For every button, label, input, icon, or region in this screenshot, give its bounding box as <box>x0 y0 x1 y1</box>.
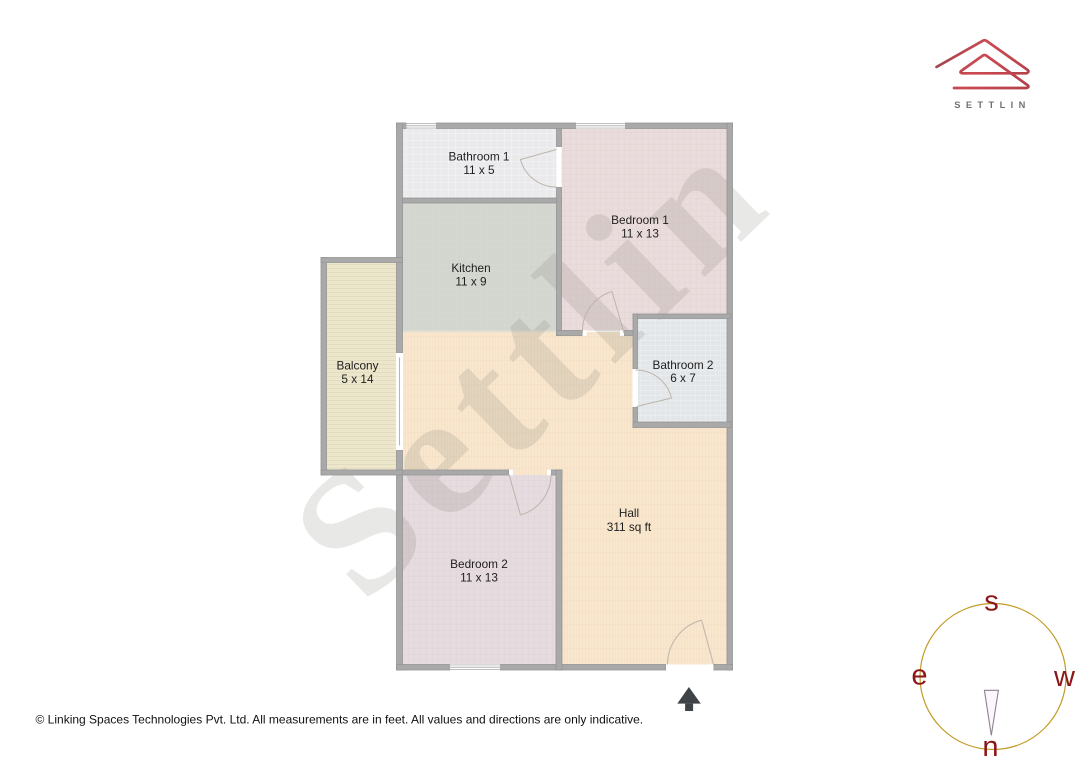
svg-text:Hall: Hall <box>619 506 639 520</box>
svg-text:11 x 9: 11 x 9 <box>455 275 486 289</box>
svg-text:11 x 13: 11 x 13 <box>460 571 498 585</box>
svg-text:e: e <box>911 660 927 692</box>
svg-text:Bathroom 1: Bathroom 1 <box>449 150 510 164</box>
svg-text:Bathroom 2: Bathroom 2 <box>653 358 714 372</box>
svg-text:Bedroom 2: Bedroom 2 <box>450 557 508 571</box>
svg-text:6 x 7: 6 x 7 <box>670 371 696 385</box>
svg-text:s: s <box>984 586 999 618</box>
svg-text:311 sq ft: 311 sq ft <box>607 520 652 534</box>
svg-text:w: w <box>1053 661 1076 693</box>
svg-text:11 x 13: 11 x 13 <box>621 227 659 241</box>
svg-text:Balcony: Balcony <box>337 359 379 373</box>
svg-text:5 x 14: 5 x 14 <box>341 372 374 386</box>
svg-text:n: n <box>982 731 998 763</box>
svg-text:Bedroom 1: Bedroom 1 <box>611 213 669 227</box>
svg-text:Kitchen: Kitchen <box>451 261 490 275</box>
svg-text:11 x 5: 11 x 5 <box>463 163 495 177</box>
svg-text:© Linking Spaces Technologies: © Linking Spaces Technologies Pvt. Ltd. … <box>36 713 644 727</box>
svg-text:SETTLIN: SETTLIN <box>954 100 1031 110</box>
